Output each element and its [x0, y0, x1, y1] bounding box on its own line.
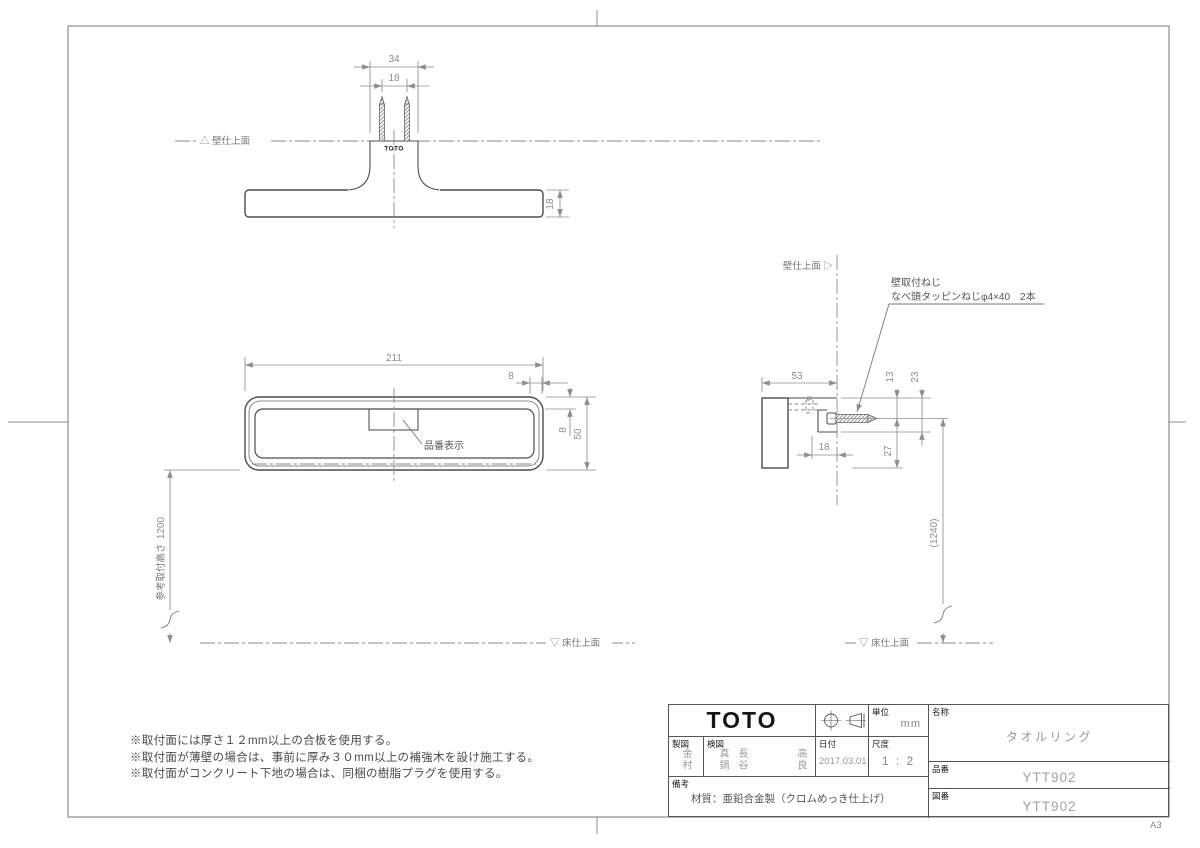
name-cell: 名称 タオルリング	[929, 705, 1170, 762]
drafter-name: 金村	[678, 748, 693, 771]
dim8h-lines	[530, 377, 568, 394]
scale-cell: 尺度 1 : 2	[869, 737, 929, 777]
dim-27: 27	[883, 445, 894, 457]
dim-53: 53	[791, 371, 803, 382]
top-view: △ 壁仕上面 TOTO 34 18 18	[175, 54, 820, 228]
date-label: 日付	[819, 738, 836, 750]
sheet-size-label: A3	[1150, 820, 1162, 831]
dwg-no-value: YTT902	[929, 799, 1170, 814]
ring-profile	[762, 398, 788, 468]
floor-surface-label-front: ▽ 床仕上面	[550, 637, 600, 649]
dim-18-step: 18	[818, 442, 830, 453]
logo-cell: TOTO	[669, 705, 816, 737]
break-symbol-1200	[161, 611, 179, 628]
part-no-value: YTT902	[929, 770, 1170, 785]
unit-label: 単位	[872, 706, 889, 718]
drafter-cell: 製図 金村	[669, 737, 704, 777]
dim-8-rim-height: 8	[558, 427, 569, 433]
dim-50: 50	[573, 428, 584, 440]
wall-surface-label-top: △ 壁仕上面	[200, 135, 250, 147]
toto-logo: TOTO	[669, 705, 815, 736]
checker-cell: 検図 真鍋 長谷 高良	[704, 737, 816, 777]
dim-13: 13	[885, 371, 896, 383]
floor-surface-label-side: ▽ 床仕上面	[859, 637, 909, 649]
product-name: タオルリング	[929, 728, 1170, 745]
mounting-screw-right	[405, 97, 410, 142]
installation-notes: ※取付面には厚さ１２mm以上の合板を使用する。 ※取付面が薄壁の場合は、事前に厚…	[130, 733, 539, 783]
scale-label: 尺度	[872, 738, 889, 750]
checker-name: 真鍋	[715, 748, 730, 771]
checker-name: 長谷	[734, 748, 749, 771]
date-cell: 日付 2017.03.01	[816, 737, 869, 777]
name-label: 名称	[932, 706, 949, 718]
ring-opening	[255, 409, 534, 458]
title-block: TOTO 単位 mm 製図 金村 検図 真鍋 長谷 高良 日付 2017.03.…	[668, 704, 1169, 817]
screw-note-line2: なべ頭タッピンねじφ4×40 2本	[891, 290, 1036, 303]
dim-211: 211	[386, 353, 402, 364]
date-value: 2017.03.01	[819, 756, 867, 767]
unit-value: mm	[901, 718, 921, 730]
ext-lines-top	[370, 61, 418, 133]
side-view: 壁仕上面 ▷ 53 13 23 27 18 壁取付ねじ なべ頭タッピンねじφ4×…	[762, 255, 1044, 649]
mounting-height-label: 参考取付高さ	[155, 543, 167, 600]
note-line: ※取付面には厚さ１２mm以上の合板を使用する。	[130, 733, 539, 750]
dim-1240: (1240)	[929, 519, 940, 548]
front-view: 品番表示 211 8 8 50 1200 参考取付高さ ▽ 床仕上面	[155, 353, 635, 649]
hidden-bracket-lines	[788, 404, 818, 410]
note-line: ※取付面が薄壁の場合は、事前に厚み３０mm以上の補強木を設け施工する。	[130, 750, 539, 767]
remarks-cell: 備考 材質：亜鉛合金製（クロムめっき仕上げ）	[669, 777, 929, 818]
part-no-cell: 品番 YTT902	[929, 762, 1170, 789]
part-number-display-label: 品番表示	[424, 439, 464, 452]
ext-lines-side	[812, 398, 948, 468]
break-symbol-1240	[934, 606, 952, 623]
unit-cell: 単位 mm	[869, 705, 929, 737]
remarks-value: 材質：亜鉛合金製（クロムめっき仕上げ）	[691, 791, 891, 806]
screw-note-line1: 壁取付ねじ	[891, 276, 941, 289]
remarks-label: 備考	[672, 778, 689, 790]
leader-line	[857, 304, 889, 412]
projection-symbol-cell	[816, 705, 869, 737]
checker-name: 高良	[793, 748, 808, 771]
dim-23: 23	[910, 371, 921, 383]
dim-18-pitch: 18	[388, 73, 400, 84]
scale-value: 1 : 2	[869, 754, 928, 768]
wall-surface-label-side: 壁仕上面 ▷	[783, 260, 833, 272]
third-angle-projection-icon	[816, 705, 868, 736]
dim-18-thickness: 18	[545, 198, 556, 210]
ext-right-front	[545, 397, 596, 470]
mounting-screw-left	[380, 97, 385, 142]
dim-8-rim-width: 8	[508, 371, 514, 382]
note-line: ※取付面がコンクリート下地の場合は、同梱の樹脂プラグを使用する。	[130, 766, 539, 783]
dim-1200: 1200	[156, 516, 167, 539]
dwg-no-cell: 図番 YTT902	[929, 789, 1170, 818]
dim-34: 34	[388, 54, 400, 65]
